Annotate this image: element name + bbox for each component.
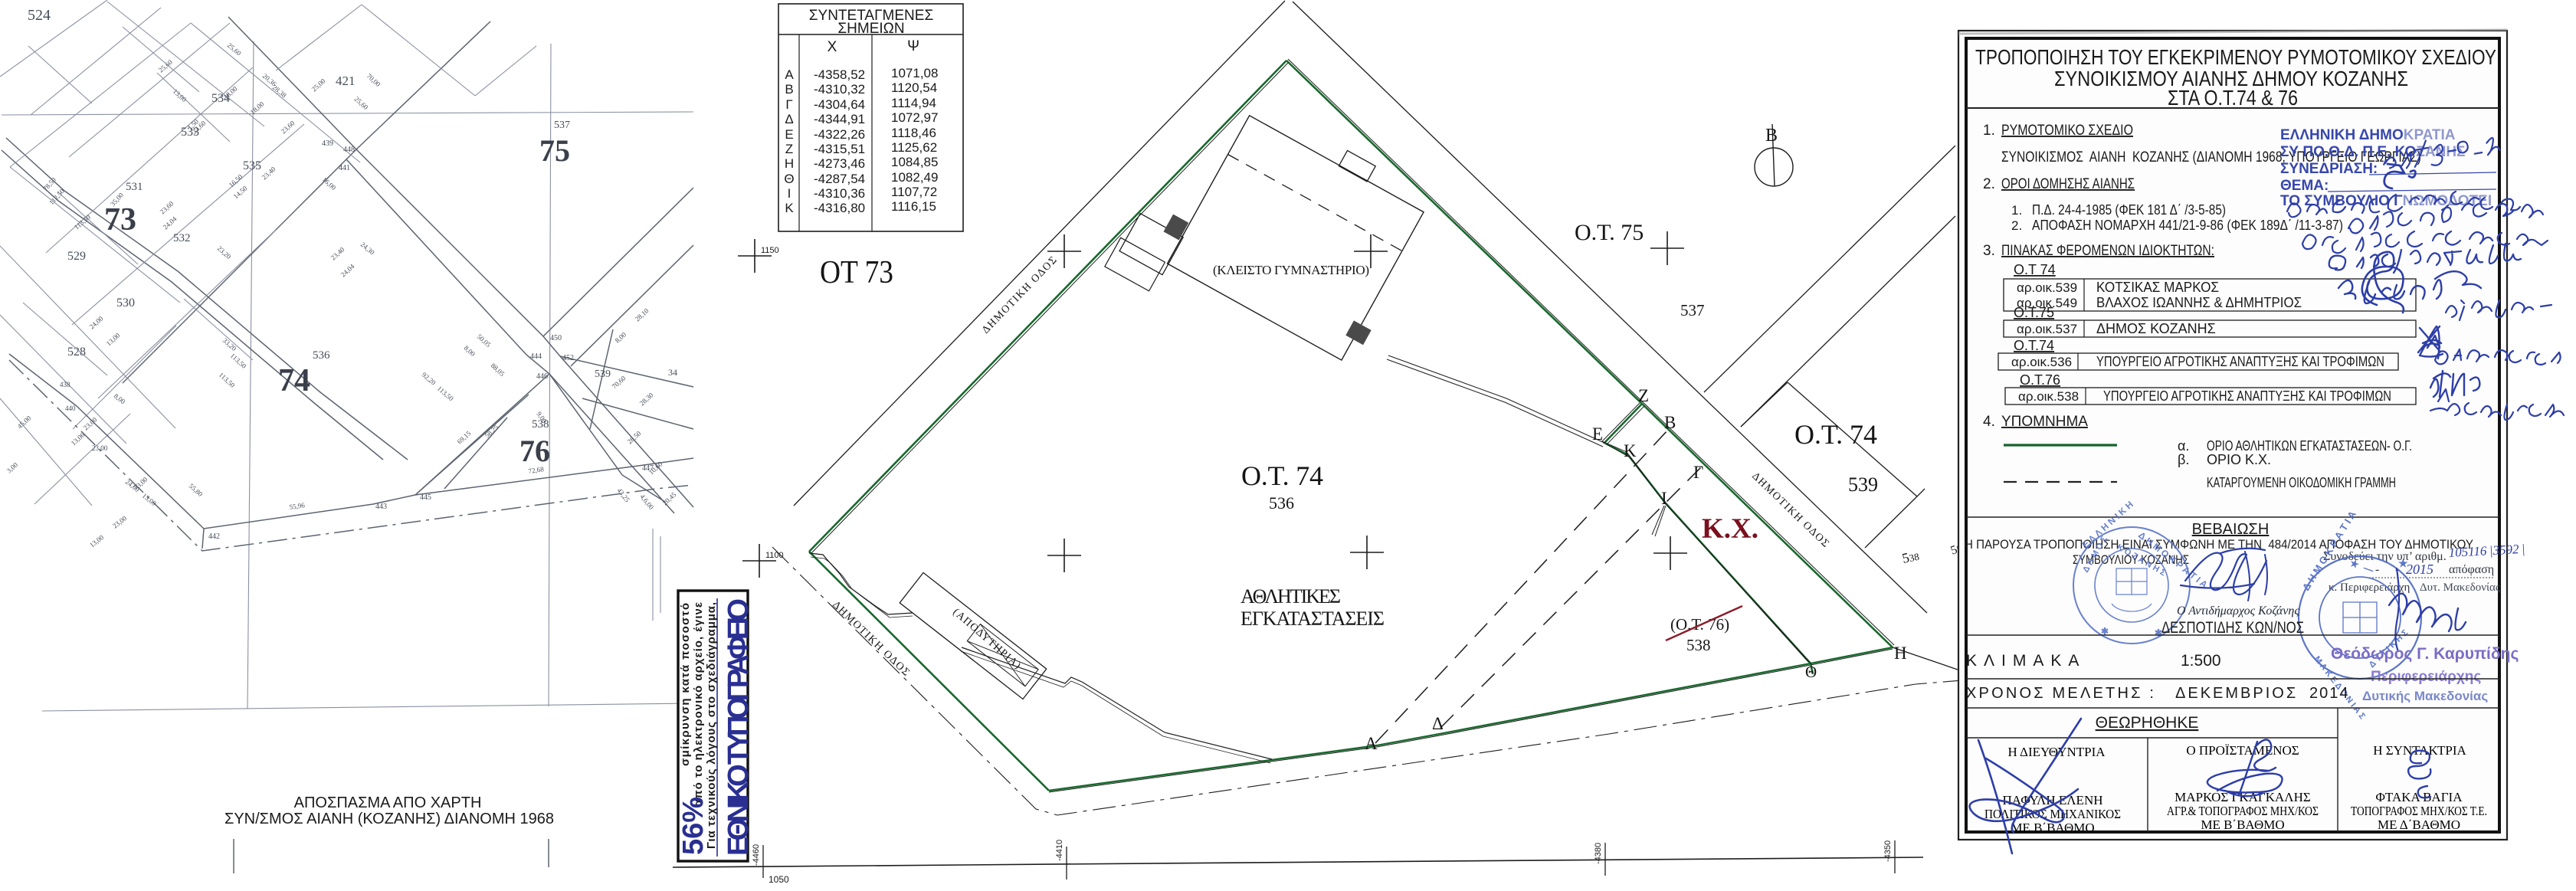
- svg-text:Β: Β: [1765, 126, 1778, 146]
- svg-text:από το ηλεκτρονικό αρχείο, έγι: από το ηλεκτρονικό αρχείο, έγινε: [692, 602, 705, 807]
- svg-text:-4344,91: -4344,91: [814, 112, 865, 126]
- svg-text:2.: 2.: [1983, 176, 1995, 192]
- svg-text:-4304,64: -4304,64: [814, 97, 865, 112]
- svg-text:-4310,32: -4310,32: [814, 82, 865, 97]
- svg-text:ΔΗΜΟΤΙΚΗ ΟΔΟΣ: ΔΗΜΟΤΙΚΗ ΟΔΟΣ: [830, 599, 912, 679]
- svg-text:28,10: 28,10: [634, 306, 651, 323]
- svg-text:3.: 3.: [1983, 243, 1995, 259]
- svg-text:4.: 4.: [1983, 414, 1995, 430]
- svg-text:-4358,52: -4358,52: [814, 67, 865, 82]
- svg-text:σμίκρυνση κατά ποσοστό: σμίκρυνση κατά ποσοστό: [679, 603, 692, 766]
- svg-text:ΜΕ Β΄ΒΑΘΜΟ: ΜΕ Β΄ΒΑΘΜΟ: [2201, 817, 2284, 832]
- svg-text:3,00: 3,00: [5, 460, 20, 474]
- svg-text:69,15: 69,15: [456, 429, 473, 445]
- svg-text:447: 447: [642, 464, 654, 473]
- svg-text:Ο ΠΡΟΪΣΤΑΜΕΝΟΣ: Ο ΠΡΟΪΣΤΑΜΕΝΟΣ: [2186, 743, 2299, 758]
- svg-text:421: 421: [336, 74, 356, 88]
- svg-text:ΔΕΣΠΟΤΙΔΗΣ ΚΩΝ/ΝΟΣ: ΔΕΣΠΟΤΙΔΗΣ ΚΩΝ/ΝΟΣ: [2161, 619, 2304, 637]
- svg-text:ΠΟΛΙΤΙΚΟΣ ΜΗΧΑΝΙΚΟΣ: ΠΟΛΙΤΙΚΟΣ ΜΗΧΑΝΙΚΟΣ: [1984, 807, 2121, 821]
- svg-text:Δ: Δ: [785, 112, 793, 126]
- svg-text:73: 73: [104, 202, 136, 237]
- svg-text:Ι: Ι: [1661, 489, 1667, 508]
- svg-text:55,80: 55,80: [188, 482, 205, 498]
- svg-text:1114,94: 1114,94: [891, 96, 936, 110]
- svg-text:αρ.οικ.537: αρ.οικ.537: [2017, 322, 2077, 336]
- svg-text:ΜΕ Δ΄ΒΑΘΜΟ: ΜΕ Δ΄ΒΑΘΜΟ: [2378, 817, 2460, 832]
- svg-text:1118,46: 1118,46: [891, 126, 936, 140]
- svg-text:Η: Η: [1894, 644, 1907, 663]
- svg-text:Η: Η: [785, 156, 794, 171]
- svg-text:531: 531: [126, 181, 143, 193]
- svg-text:Ψ: Ψ: [907, 38, 919, 54]
- svg-text:536: 536: [313, 349, 330, 362]
- svg-text:1071,08: 1071,08: [891, 66, 938, 80]
- svg-text:74: 74: [278, 363, 310, 398]
- svg-text:ΧΡΟΝΟΣ ΜΕΛΕΤΗΣ :: ΧΡΟΝΟΣ ΜΕΛΕΤΗΣ :: [1966, 685, 2156, 702]
- svg-text:1.: 1.: [1983, 123, 1995, 139]
- svg-text:ΒΕΒΑΙΩΣΗ: ΒΕΒΑΙΩΣΗ: [2192, 521, 2270, 538]
- svg-text:450: 450: [550, 334, 562, 342]
- svg-text:ΥΠΟΥΡΓΕΙΟ ΑΓΡΟΤΙΚΗΣ ΑΝΑΠΤΥΞΗΣ: ΥΠΟΥΡΓΕΙΟ ΑΓΡΟΤΙΚΗΣ ΑΝΑΠΤΥΞΗΣ ΚΑΙ ΤΡΟΦΙΜ…: [2096, 354, 2384, 369]
- svg-text:Ο Αντιδήμαρχος Κοζάνης: Ο Αντιδήμαρχος Κοζάνης: [2177, 604, 2299, 617]
- svg-text:ΥΠΟΥΡΓΕΙΟ ΑΓΡΟΤΙΚΗΣ ΑΝΑΠΤΥΞΗΣ: ΥΠΟΥΡΓΕΙΟ ΑΓΡΟΤΙΚΗΣ ΑΝΑΠΤΥΞΗΣ ΚΑΙ ΤΡΟΦΙΜ…: [2103, 388, 2391, 404]
- svg-text:αρ.οικ.536: αρ.οικ.536: [2011, 355, 2072, 369]
- svg-text:28,50: 28,50: [626, 429, 643, 445]
- svg-text:ΣΗΜΕΙΩΝ: ΣΗΜΕΙΩΝ: [837, 21, 904, 37]
- svg-text:Γ: Γ: [785, 97, 792, 112]
- svg-text:ΟΡΙΟ ΑΘΛΗΤΙΚΩΝ ΕΓΚΑΤΑΣΤΑΣΕΩΝ-: ΟΡΙΟ ΑΘΛΗΤΙΚΩΝ ΕΓΚΑΤΑΣΤΑΣΕΩΝ- Ο.Γ.: [2207, 438, 2412, 454]
- svg-text:Δυτ. Μακεδονίας: Δυτ. Μακεδονίας: [2420, 581, 2500, 594]
- svg-text:2.: 2.: [2011, 218, 2022, 233]
- svg-text:Δ: Δ: [1432, 714, 1444, 733]
- svg-text:529: 529: [67, 250, 86, 263]
- svg-text:441: 441: [339, 164, 350, 172]
- svg-text:ΔΗΜΟΤΙΚΗ ΟΔΟΣ: ΔΗΜΟΤΙΚΗ ΟΔΟΣ: [1749, 470, 1831, 550]
- svg-text:αρ.οικ.539: αρ.οικ.539: [2017, 280, 2077, 295]
- svg-text:Χ: Χ: [828, 39, 837, 55]
- svg-text:1150: 1150: [761, 246, 779, 255]
- svg-text:439: 439: [322, 139, 333, 148]
- svg-text:αρ.οικ.538: αρ.οικ.538: [2018, 389, 2079, 404]
- svg-text:β.: β.: [2178, 452, 2189, 467]
- svg-text:Κ: Κ: [785, 201, 794, 215]
- svg-text:ΤΟΠΟΓΡΑΦΟΣ ΜΗΧ/ΚΟΣ Τ.Ε.: ΤΟΠΟΓΡΑΦΟΣ ΜΗΧ/ΚΟΣ Τ.Ε.: [2351, 804, 2487, 818]
- svg-text:23,40: 23,40: [329, 245, 346, 261]
- svg-text:28,30: 28,30: [638, 391, 655, 407]
- svg-text:528: 528: [67, 346, 86, 359]
- svg-text:ΥΠΟΜΝΗΜΑ: ΥΠΟΜΝΗΜΑ: [2001, 414, 2088, 430]
- svg-text:530: 530: [116, 296, 135, 310]
- svg-text:34: 34: [668, 367, 677, 378]
- svg-text:8,00: 8,00: [463, 344, 477, 358]
- svg-text:ΑΘΛΗΤΙΚΕΣ: ΑΘΛΗΤΙΚΕΣ: [1240, 585, 1342, 608]
- svg-text:2015: 2015: [2406, 562, 2433, 577]
- svg-text:70,00: 70,00: [365, 72, 382, 88]
- svg-text:76: 76: [519, 434, 550, 468]
- svg-text:Ο.Τ. 74: Ο.Τ. 74: [1241, 460, 1323, 491]
- svg-text:-4316,80: -4316,80: [814, 201, 865, 215]
- svg-text:113,50: 113,50: [73, 213, 93, 231]
- svg-text:ΤΟ ΣΥΜΒΟΥΛΙΟ ΓΝΩΜΟΔΟΤΕΙ: ΤΟ ΣΥΜΒΟΥΛΙΟ ΓΝΩΜΟΔΟΤΕΙ: [2280, 193, 2492, 209]
- svg-text:538: 538: [1686, 636, 1711, 654]
- svg-text:25,00: 25,00: [310, 77, 327, 93]
- svg-text:532: 532: [173, 232, 191, 244]
- svg-text:Ζ: Ζ: [785, 142, 793, 156]
- svg-text:-4410: -4410: [1055, 840, 1064, 861]
- svg-text:539: 539: [595, 369, 611, 380]
- svg-text:18,00: 18,00: [222, 84, 239, 100]
- svg-text:524: 524: [28, 7, 51, 24]
- svg-text:-4350: -4350: [1883, 840, 1893, 862]
- svg-text:8,00: 8,00: [614, 330, 628, 344]
- svg-text:24,04: 24,04: [162, 215, 179, 231]
- svg-text:73,00: 73,00: [133, 475, 149, 491]
- svg-text:23,20: 23,20: [216, 244, 233, 260]
- svg-text:24,04: 24,04: [339, 262, 356, 278]
- svg-text:(ΑΠΟΔΥΤΗΡΙΑ): (ΑΠΟΔΥΤΗΡΙΑ): [950, 607, 1023, 672]
- svg-text:ΑΓΡ.& ΤΟΠΟΓΡΑΦΟΣ ΜΗΧ/ΚΟΣ: ΑΓΡ.& ΤΟΠΟΓΡΑΦΟΣ ΜΗΧ/ΚΟΣ: [2167, 804, 2319, 818]
- svg-text:-4315,51: -4315,51: [814, 142, 865, 156]
- svg-text:538: 538: [1901, 548, 1921, 566]
- svg-text:440: 440: [65, 405, 76, 412]
- svg-text:-4322,26: -4322,26: [814, 127, 865, 142]
- svg-text:1084,85: 1084,85: [891, 155, 938, 169]
- svg-text:13,00: 13,00: [105, 331, 122, 347]
- svg-text:78,50: 78,50: [41, 175, 57, 192]
- svg-text:Θεόδωρος Γ. Καρυπίδης: Θεόδωρος Γ. Καρυπίδης: [2331, 645, 2519, 663]
- svg-text:Ο.Τ.75: Ο.Τ.75: [2014, 305, 2054, 320]
- svg-text:Α: Α: [785, 67, 794, 82]
- svg-text:446: 446: [536, 372, 548, 381]
- svg-text:539: 539: [1848, 473, 1878, 496]
- svg-text:1050: 1050: [769, 874, 789, 885]
- svg-text:Ο.Τ. 74: Ο.Τ. 74: [1794, 419, 1877, 450]
- svg-text:58,25: 58,25: [483, 423, 500, 439]
- svg-text:23,40: 23,40: [261, 165, 277, 181]
- svg-text:113,50: 113,50: [229, 352, 248, 370]
- svg-text:1116,15: 1116,15: [891, 199, 936, 214]
- svg-text:Θ: Θ: [1805, 663, 1817, 681]
- svg-text:23,60: 23,60: [159, 199, 175, 215]
- svg-text:ΑΠΟΣΠΑΣΜΑ ΑΠΟ ΧΑΡΤΗ: ΑΠΟΣΠΑΣΜΑ ΑΠΟ ΧΑΡΤΗ: [294, 794, 482, 811]
- svg-text:απόφαση: απόφαση: [2449, 563, 2494, 576]
- svg-text:113,50: 113,50: [218, 371, 237, 389]
- svg-text:-4273,46: -4273,46: [814, 156, 865, 171]
- svg-text:Β: Β: [1664, 413, 1676, 432]
- svg-text:ΔΗΜΟΣ ΚΟΖΑΝΗΣ: ΔΗΜΟΣ ΚΟΖΑΝΗΣ: [2096, 321, 2216, 336]
- svg-text:Ε: Ε: [1592, 424, 1603, 444]
- svg-text:Κ: Κ: [1624, 441, 1637, 460]
- svg-text:★: ★: [2398, 557, 2408, 569]
- svg-text:24,00: 24,00: [88, 314, 105, 330]
- svg-text:88,05: 88,05: [490, 362, 506, 378]
- svg-text:1120,54: 1120,54: [891, 80, 937, 95]
- svg-text:537: 537: [1680, 301, 1705, 319]
- svg-text:(ΚΛΕΙΣΤΟ ΓΥΜΝΑΣΤΗΡΙΟ): (ΚΛΕΙΣΤΟ ΓΥΜΝΑΣΤΗΡΙΟ): [1213, 263, 1369, 277]
- svg-text:45,00: 45,00: [16, 414, 33, 430]
- svg-text:43,25: 43,25: [615, 486, 631, 504]
- svg-text:50,05: 50,05: [476, 332, 493, 349]
- svg-text:Κ.Χ.: Κ.Χ.: [1702, 513, 1758, 545]
- svg-text:445: 445: [420, 493, 431, 502]
- svg-text:1125,62: 1125,62: [891, 140, 937, 155]
- svg-text:13,00: 13,00: [88, 533, 106, 549]
- svg-text:-4310,36: -4310,36: [814, 186, 865, 201]
- svg-text:25,60: 25,60: [226, 41, 243, 57]
- svg-text:ΒΛΑΧΟΣ ΙΩΑΝΝΗΣ & ΔΗΜΗΤΡΙΟΣ: ΒΛΑΧΟΣ ΙΩΑΝΝΗΣ & ΔΗΜΗΤΡΙΟΣ: [2096, 295, 2302, 310]
- svg-text:ΔΕΚΕΜΒΡΙΟΣ: ΔΕΚΕΜΒΡΙΟΣ: [2175, 685, 2298, 702]
- svg-text:Ε: Ε: [785, 127, 793, 142]
- svg-text:442: 442: [208, 532, 220, 541]
- svg-text:ΡΥΜΟΤΟΜΙΚΟ ΣΧΕΔΙΟ: ΡΥΜΟΤΟΜΙΚΟ ΣΧΕΔΙΟ: [2001, 123, 2133, 139]
- svg-text:ΑΠΟΦΑΣΗ ΝΟΜΑΡΧΗ 441/21-9-86 (Φ: ΑΠΟΦΑΣΗ ΝΟΜΑΡΧΗ 441/21-9-86 (ΦΕΚ 189Δ΄ /…: [2032, 218, 2343, 233]
- svg-text:-4287,54: -4287,54: [814, 172, 865, 186]
- svg-text:ΕΛΛΗΝΙΚΗ ΔΗΜΟΚΡΑΤΙΑ: ΕΛΛΗΝΙΚΗ ΔΗΜΟΚΡΑΤΙΑ: [2280, 127, 2456, 143]
- svg-text:444: 444: [530, 352, 542, 361]
- svg-text:ΣΥΝΕΔΡΙΑΣΗ:: ΣΥΝΕΔΡΙΑΣΗ:: [2280, 161, 2378, 177]
- svg-text:24,30: 24,30: [359, 241, 376, 257]
- svg-text:α.: α.: [2178, 438, 2189, 454]
- svg-text:Ο.Τ.76: Ο.Τ.76: [2020, 372, 2060, 388]
- svg-text:Θ: Θ: [784, 172, 794, 186]
- svg-text:56%: 56%: [677, 797, 710, 855]
- svg-text:452: 452: [562, 354, 574, 362]
- svg-text:23,00: 23,00: [92, 444, 108, 452]
- svg-text:1072,97: 1072,97: [891, 110, 938, 125]
- svg-text:ΠΙΝΑΚΑΣ ΦΕΡΟΜΕΝΩΝ ΙΔΙΟΚΤΗΤΩΝ:: ΠΙΝΑΚΑΣ ΦΕΡΟΜΕΝΩΝ ΙΔΙΟΚΤΗΤΩΝ:: [2001, 243, 2214, 259]
- svg-text:23,00: 23,00: [111, 514, 129, 530]
- svg-text:448: 448: [343, 146, 355, 154]
- svg-text:4,6,00: 4,6,00: [638, 493, 655, 511]
- svg-text:Ι: Ι: [788, 186, 791, 201]
- svg-text:13,00: 13,00: [172, 87, 188, 103]
- svg-text:Ο.Τ 74: Ο.Τ 74: [2014, 262, 2056, 277]
- svg-text:113,50: 113,50: [436, 385, 456, 403]
- svg-text:ΔΗΜΟΤΙΚΗ ΟΔΟΣ: ΔΗΜΟΤΙΚΗ ΟΔΟΣ: [980, 254, 1060, 336]
- svg-text:-: -: [2375, 563, 2379, 576]
- svg-text:ΣΥΝ/ΣΜΟΣ ΑΙΑΝΗ (ΚΟΖΑΝΗΣ) ΔΙΑΝΟ: ΣΥΝ/ΣΜΟΣ ΑΙΑΝΗ (ΚΟΖΑΝΗΣ) ΔΙΑΝΟΜΗ 1968: [224, 811, 554, 827]
- svg-text:ΚΑΤΑΡΓΟΥΜΕΝΗ ΟΙΚΟΔΟΜΙΚΗ ΓΡΑΜΜΗ: ΚΑΤΑΡΓΟΥΜΕΝΗ ΟΙΚΟΔΟΜΙΚΗ ΓΡΑΜΜΗ: [2207, 475, 2396, 490]
- svg-text:70,60: 70,60: [611, 374, 628, 390]
- svg-text:Β: Β: [785, 82, 793, 97]
- svg-text:ΚΟΤΣΙΚΑΣ ΜΑΡΚΟΣ: ΚΟΤΣΙΚΑΣ ΜΑΡΚΟΣ: [2096, 280, 2219, 295]
- svg-text:8,00: 8,00: [113, 392, 127, 406]
- svg-text:Ζ: Ζ: [1638, 386, 1649, 405]
- svg-text:-4380: -4380: [1594, 843, 1603, 864]
- svg-text:ΟΤ 73: ΟΤ 73: [820, 255, 893, 290]
- svg-text:ΣΤΑ Ο.Τ.74 & 76: ΣΤΑ Ο.Τ.74 & 76: [2168, 86, 2298, 110]
- svg-text:2014: 2014: [2309, 685, 2350, 702]
- svg-text:ΘΕΩΡΗΘΗΚΕ: ΘΕΩΡΗΘΗΚΕ: [2096, 714, 2199, 732]
- svg-text:ΟΡΙΟ Κ.Χ.: ΟΡΙΟ Κ.Χ.: [2207, 452, 2271, 467]
- svg-text:Περιφερειάρχης: Περιφερειάρχης: [2371, 669, 2481, 685]
- svg-text:438: 438: [60, 381, 70, 388]
- svg-text:25,60: 25,60: [353, 95, 370, 111]
- svg-text:1082,49: 1082,49: [891, 170, 938, 185]
- svg-text:443: 443: [375, 503, 387, 511]
- svg-text:16,00: 16,00: [321, 175, 338, 192]
- svg-text:ΚΛΙΜΑΚΑ: ΚΛΙΜΑΚΑ: [1966, 652, 2086, 670]
- svg-text:ΤΡΟΠΟΠΟΙΗΣΗ ΤΟΥ ΕΓΚΕΚΡΙΜΕΝΟΥ Ρ: ΤΡΟΠΟΠΟΙΗΣΗ ΤΟΥ ΕΓΚΕΚΡΙΜΕΝΟΥ ΡΥΜΟΤΟΜΙΚΟΥ…: [1975, 45, 2496, 69]
- svg-text:536: 536: [1269, 493, 1294, 513]
- svg-text:ΟΡΟΙ ΔΟΜΗΣΗΣ ΑΙΑΝΗΣ: ΟΡΟΙ ΔΟΜΗΣΗΣ ΑΙΑΝΗΣ: [2001, 176, 2135, 192]
- svg-text:537: 537: [554, 120, 570, 131]
- svg-text:Γ: Γ: [1693, 463, 1703, 482]
- svg-text:ΘΕΜΑ:: ΘΕΜΑ:: [2280, 178, 2329, 194]
- svg-text:92,20: 92,20: [421, 371, 438, 387]
- svg-text:1.: 1.: [2011, 203, 2022, 218]
- svg-text:75: 75: [539, 133, 570, 168]
- svg-text:Ο.Τ. 75: Ο.Τ. 75: [1575, 220, 1644, 245]
- svg-text:Α: Α: [1365, 734, 1378, 753]
- svg-text:ΕΓΚΑΤΑΣΤΑΣΕΙΣ: ΕΓΚΑΤΑΣΤΑΣΕΙΣ: [1240, 608, 1386, 630]
- svg-text:Ο.Τ.74: Ο.Τ.74: [2014, 338, 2054, 353]
- svg-text:ΕΘΝΙΚΟ ΤΥΠΟΓΡΑΦΕΙΟ: ΕΘΝΙΚΟ ΤΥΠΟΓΡΑΦΕΙΟ: [723, 598, 755, 856]
- svg-text:1:500: 1:500: [2181, 652, 2221, 670]
- svg-text:20,45: 20,45: [661, 490, 678, 506]
- svg-text:Π.Δ. 24-4-1985 (ΦΕΚ 181 Δ΄ /3-: Π.Δ. 24-4-1985 (ΦΕΚ 181 Δ΄ /3-5-85): [2032, 202, 2226, 218]
- svg-text:535: 535: [243, 159, 261, 172]
- svg-text:Δυτικής Μακεδονίας: Δυτικής Μακεδονίας: [2362, 689, 2488, 703]
- svg-text:72,68: 72,68: [528, 465, 545, 475]
- svg-text:1107,72: 1107,72: [891, 185, 937, 199]
- svg-text:55,96: 55,96: [289, 501, 306, 511]
- svg-text:105116 |3592 |: 105116 |3592 |: [2448, 542, 2525, 560]
